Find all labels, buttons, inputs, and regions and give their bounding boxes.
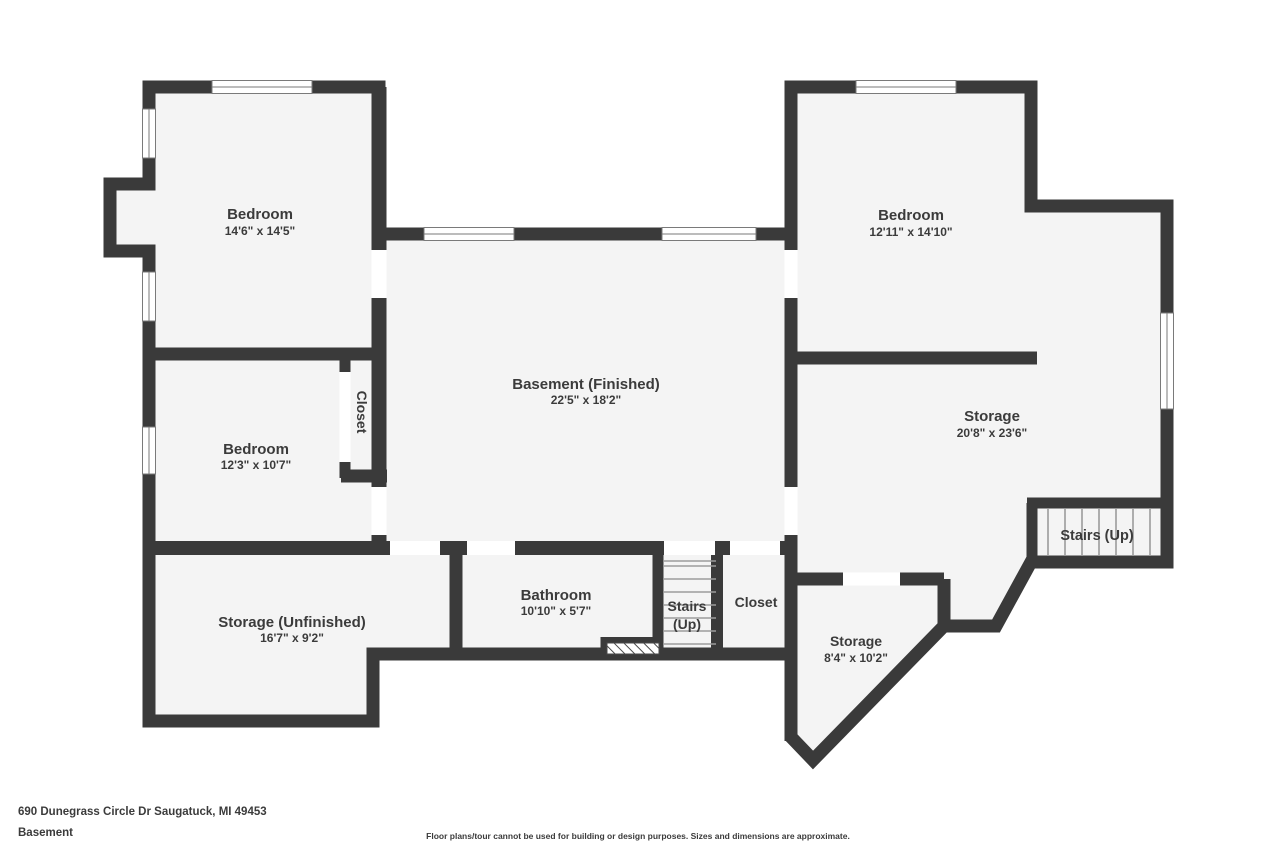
- door-opening: [664, 541, 715, 555]
- footer-level: Basement: [18, 827, 73, 839]
- room-dims-bathroom: 10'10" x 5'7": [521, 604, 591, 618]
- floor-plan-canvas: Bedroom 14'6" x 14'5" Bedroom 12'11" x 1…: [0, 0, 1280, 853]
- door-opening: [372, 250, 387, 298]
- room-label-stairs-right: Stairs (Up): [1060, 528, 1133, 544]
- room-label-stairs-center: Stairs: [668, 598, 707, 614]
- window: [143, 427, 156, 474]
- room-label-bedroom-mid-left: Bedroom: [223, 441, 289, 458]
- room-dims-storage-right: 20'8" x 23'6": [957, 426, 1027, 440]
- room-label-bathroom: Bathroom: [521, 587, 592, 604]
- room-label-storage-small: Storage: [830, 633, 882, 649]
- door-opening: [785, 250, 798, 298]
- footer-disclaimer: Floor plans/tour cannot be used for buil…: [426, 831, 850, 841]
- crawl-space-hatch: [607, 643, 659, 654]
- door-opening: [785, 487, 798, 535]
- room-label-bedroom-top-right: Bedroom: [878, 207, 944, 224]
- room-dims-bedroom-top-left: 14'6" x 14'5": [225, 224, 295, 238]
- room-dims-storage-small: 8'4" x 10'2": [824, 651, 888, 665]
- door-opening: [843, 573, 900, 586]
- room-label-closet-bottom: Closet: [735, 594, 778, 610]
- door-opening: [730, 541, 780, 555]
- room-label-stairs-center-line2: (Up): [673, 616, 701, 632]
- door-opening: [467, 541, 515, 555]
- room-label-storage-unfinished: Storage (Unfinished): [218, 614, 366, 631]
- window: [143, 272, 156, 321]
- room-label-storage-right: Storage: [964, 408, 1020, 425]
- window: [856, 81, 956, 94]
- room-dims-bedroom-mid-left: 12'3" x 10'7": [221, 458, 291, 472]
- room-label-closet-mid: Closet: [354, 391, 370, 434]
- footer: 690 Dunegrass Circle Dr Saugatuck, MI 49…: [18, 806, 850, 841]
- room-dims-bedroom-top-right: 12'11" x 14'10": [869, 225, 952, 239]
- door-opening: [340, 372, 351, 462]
- window: [212, 81, 312, 94]
- window: [662, 228, 756, 241]
- window: [424, 228, 514, 241]
- floor-plan-page: Bedroom 14'6" x 14'5" Bedroom 12'11" x 1…: [0, 0, 1280, 853]
- window: [143, 109, 156, 158]
- room-dims-storage-unfinished: 16'7" x 9'2": [260, 631, 324, 645]
- window: [1161, 313, 1174, 409]
- room-dims-basement-finished: 22'5" x 18'2": [551, 393, 621, 407]
- door-opening: [372, 487, 387, 535]
- door-opening: [390, 541, 440, 555]
- room-label-basement-finished: Basement (Finished): [512, 376, 660, 393]
- footer-address: 690 Dunegrass Circle Dr Saugatuck, MI 49…: [18, 806, 267, 818]
- room-label-bedroom-top-left: Bedroom: [227, 206, 293, 223]
